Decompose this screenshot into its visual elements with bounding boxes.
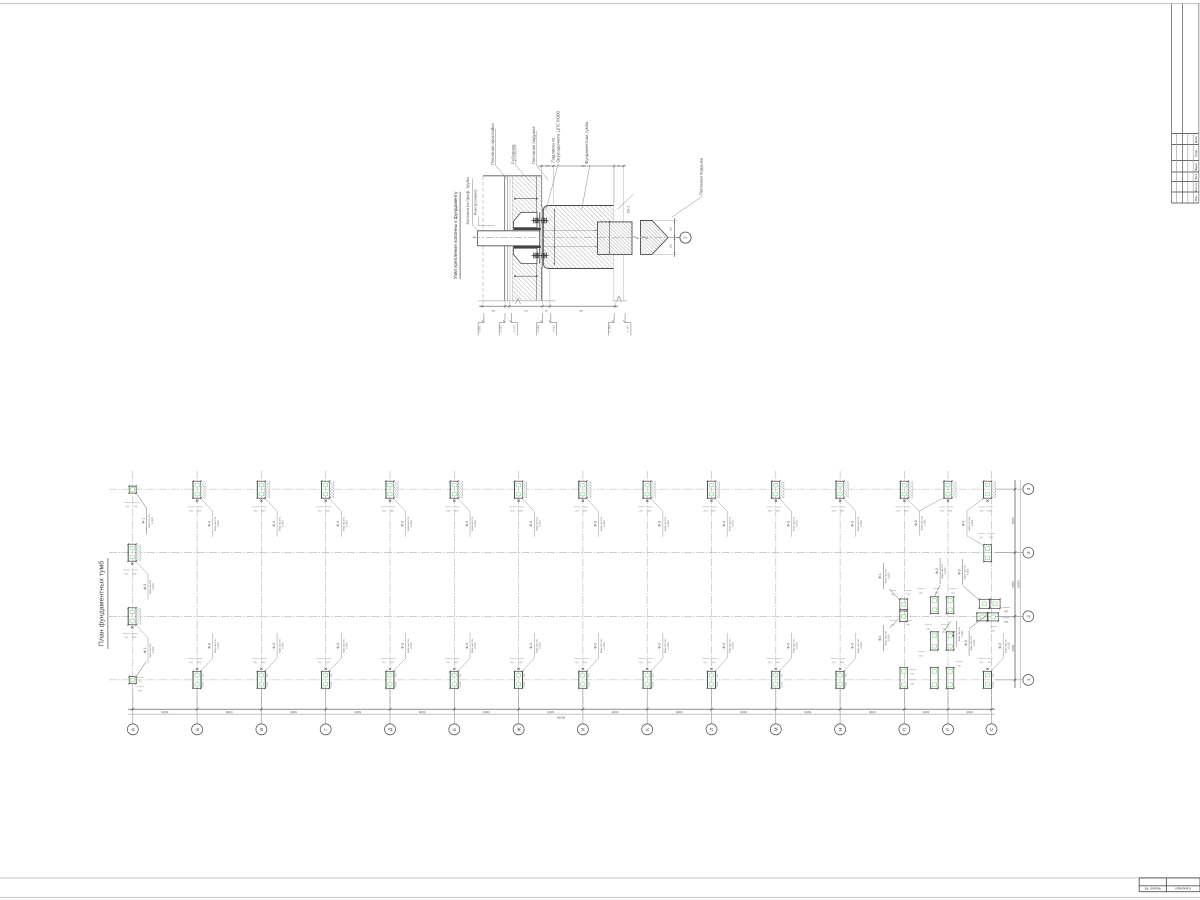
svg-text:К: К [645, 728, 650, 731]
svg-text:500: 500 [775, 509, 780, 512]
svg-text:500: 500 [987, 661, 992, 664]
svg-text:-0.620: -0.620 [152, 583, 155, 591]
svg-text:250: 250 [138, 689, 143, 692]
svg-text:-0.620: -0.620 [281, 520, 284, 528]
svg-text:-0.620: -0.620 [860, 642, 863, 650]
svg-text:№док.: №док. [1194, 162, 1198, 171]
svg-text:Ф-1: Ф-1 [878, 573, 882, 579]
svg-text:-0.620: -0.620 [961, 630, 964, 638]
svg-text:750: 750 [510, 661, 515, 664]
svg-text:безусадочного ЦПС М300: безусадочного ЦПС М300 [556, 110, 561, 162]
svg-text:-0.620: -0.620 [474, 642, 477, 650]
svg-text:750: 750 [992, 673, 995, 678]
svg-text:Ф-2: Ф-2 [529, 521, 533, 527]
svg-text:4: 4 [1026, 487, 1031, 490]
svg-text:-0.620: -0.620 [796, 520, 799, 528]
svg-text:6000: 6000 [804, 710, 811, 714]
svg-text:Рубероид: Рубероид [511, 144, 516, 164]
svg-text:6000: 6000 [354, 710, 361, 714]
svg-text:Песчаная прослойка: Песчаная прослойка [490, 123, 495, 165]
svg-text:150: 150 [670, 226, 673, 231]
svg-text:Ф-2: Ф-2 [465, 521, 469, 527]
svg-text:750: 750 [510, 509, 515, 512]
svg-text:2500: 2500 [992, 681, 995, 687]
svg-text:750: 750 [202, 673, 205, 678]
svg-text:1: 1 [1026, 678, 1031, 681]
svg-text:-0.620: -0.620 [151, 516, 154, 524]
svg-text:6000: 6000 [161, 710, 168, 714]
svg-text:Ф-2: Ф-2 [851, 521, 855, 527]
svg-text:Н: Н [838, 728, 843, 731]
svg-text:-0.620: -0.620 [552, 325, 555, 333]
svg-text:600: 600 [578, 309, 583, 312]
svg-text:Песчаная подушка: Песчаная подушка [531, 126, 536, 164]
svg-text:2500: 2500 [330, 681, 333, 687]
svg-text:750: 750 [639, 661, 644, 664]
svg-text:-0.620: -0.620 [731, 520, 734, 528]
svg-text:Ф-2: Ф-2 [208, 521, 212, 527]
svg-text:4000: 4000 [923, 710, 930, 714]
svg-text:Ф-2: Ф-2 [593, 521, 597, 527]
svg-text:750: 750 [125, 505, 130, 508]
svg-text:500: 500 [582, 661, 587, 664]
svg-text:500: 500 [839, 509, 844, 512]
svg-text:В: В [259, 728, 264, 731]
svg-text:6000: 6000 [1011, 581, 1015, 588]
svg-text:750: 750 [979, 661, 984, 664]
svg-text:2500: 2500 [459, 681, 462, 687]
svg-text:750: 750 [446, 661, 451, 664]
svg-text:2500: 2500 [202, 681, 205, 687]
svg-text:Ф-2: Ф-2 [401, 521, 405, 527]
svg-text:Ф-2: Ф-2 [722, 643, 726, 649]
svg-text:750: 750 [890, 593, 895, 596]
svg-text:-0.620: -0.620 [346, 642, 349, 650]
svg-text:-0.620: -0.620 [967, 568, 970, 576]
svg-text:6000: 6000 [740, 710, 747, 714]
svg-text:750: 750 [253, 509, 258, 512]
svg-text:-0.620: -0.620 [860, 520, 863, 528]
svg-text:500: 500 [711, 509, 716, 512]
svg-text:500: 500 [261, 509, 266, 512]
svg-text:750: 750 [910, 682, 915, 685]
svg-text:500: 500 [454, 661, 459, 664]
svg-text:Подп.: Подп. [1194, 149, 1198, 157]
svg-text:150: 150 [670, 243, 673, 248]
svg-text:750: 750 [926, 627, 931, 630]
svg-text:-0.620: -0.620 [410, 642, 413, 650]
svg-text:0.000: 0.000 [478, 325, 481, 332]
svg-text:500: 500 [1004, 610, 1009, 613]
svg-text:Ф-2: Ф-2 [722, 521, 726, 527]
svg-text:-0.170: -0.170 [513, 325, 516, 333]
svg-text:Ф-2: Ф-2 [952, 631, 956, 637]
svg-text:-0.600: -0.600 [887, 634, 890, 642]
svg-text:2500: 2500 [652, 681, 655, 687]
svg-text:-0.620: -0.620 [667, 520, 670, 528]
svg-text:6000: 6000 [1011, 644, 1015, 651]
svg-text:4000: 4000 [966, 710, 973, 714]
svg-text:Ф-2: Ф-2 [998, 643, 1002, 649]
svg-text:500: 500 [325, 509, 330, 512]
svg-text:750: 750 [317, 509, 322, 512]
svg-text:Формат А3: Формат А3 [1145, 886, 1161, 890]
svg-text:510: 510 [523, 309, 528, 312]
svg-text:750: 750 [395, 673, 398, 678]
svg-text:6000: 6000 [483, 710, 490, 714]
svg-text:500: 500 [947, 509, 952, 512]
svg-text:500: 500 [133, 505, 138, 508]
svg-text:Ф-2: Ф-2 [272, 643, 276, 649]
svg-text:500: 500 [839, 661, 844, 664]
svg-text:500: 500 [518, 661, 523, 664]
svg-text:-0.620: -0.620 [923, 519, 926, 527]
svg-text:П: П [902, 728, 907, 731]
svg-text:-0.620: -0.620 [1007, 642, 1010, 650]
svg-text:2500: 2500 [523, 681, 526, 687]
svg-text:План фундаментных тумб: План фундаментных тумб [97, 561, 105, 646]
svg-text:750: 750 [780, 673, 783, 678]
svg-text:2500: 2500 [716, 681, 719, 687]
svg-text:Копировал: Копировал [1175, 886, 1191, 890]
svg-text:750: 750 [253, 661, 258, 664]
svg-text:2: 2 [1026, 615, 1031, 618]
svg-text:160: 160 [491, 309, 496, 312]
svg-text:-0.620: -0.620 [796, 642, 799, 650]
svg-text:750: 750 [934, 591, 939, 594]
svg-text:И: И [581, 728, 586, 731]
svg-text:750: 750 [979, 509, 984, 512]
svg-text:100: 100 [545, 164, 550, 167]
svg-text:750: 750 [446, 509, 451, 512]
svg-text:Ф-2: Ф-2 [962, 520, 966, 526]
svg-text:500: 500 [582, 509, 587, 512]
svg-text:750: 750 [918, 654, 923, 657]
svg-text:-0.150: -0.150 [499, 325, 502, 333]
svg-text:Дата: Дата [1194, 136, 1198, 143]
svg-text:-0.620: -0.620 [667, 642, 670, 650]
svg-text:750: 750 [189, 661, 194, 664]
svg-text:Ф-2: Ф-2 [593, 643, 597, 649]
svg-text:750: 750 [918, 591, 923, 594]
svg-text:-0.620: -0.620 [971, 519, 974, 527]
svg-text:-0.620: -0.620 [474, 520, 477, 528]
svg-text:750: 750 [890, 623, 895, 626]
svg-text:Ф-1: Ф-1 [142, 518, 146, 524]
svg-text:Ф-2: Ф-2 [465, 643, 469, 649]
svg-text:750: 750 [703, 661, 708, 664]
svg-text:500: 500 [196, 661, 201, 664]
svg-text:750: 750 [910, 672, 915, 675]
svg-text:750: 750 [703, 509, 708, 512]
svg-text:-0.620: -0.620 [217, 642, 220, 650]
svg-text:Б: Б [195, 728, 200, 731]
svg-text:500: 500 [518, 509, 523, 512]
svg-text:Л: Л [709, 728, 714, 731]
svg-text:Изм.: Изм. [1194, 195, 1198, 202]
svg-text:Ф-2: Ф-2 [401, 643, 405, 649]
svg-text:750: 750 [330, 673, 333, 678]
svg-text:750: 750 [906, 593, 911, 596]
svg-text:Ф-2: Ф-2 [957, 569, 961, 575]
svg-text:Ф-2: Ф-2 [658, 521, 662, 527]
svg-text:750: 750 [189, 509, 194, 512]
svg-text:-0.620: -0.620 [944, 567, 947, 575]
svg-text:80000: 80000 [556, 715, 565, 719]
svg-text:2500: 2500 [845, 681, 848, 687]
svg-text:-0.620: -0.620 [603, 520, 606, 528]
svg-text:750: 750 [382, 661, 387, 664]
svg-text:Ф-1: Ф-1 [143, 647, 147, 653]
svg-text:500: 500 [196, 509, 201, 512]
svg-text:750: 750 [138, 680, 143, 683]
svg-text:750: 750 [266, 673, 269, 678]
svg-text:500: 500 [132, 572, 137, 575]
svg-text:500: 500 [454, 509, 459, 512]
svg-text:500: 500 [389, 661, 394, 664]
svg-text:500: 500 [1004, 620, 1009, 623]
svg-text:Ф-1: Ф-1 [878, 635, 882, 641]
svg-text:2500: 2500 [780, 681, 783, 687]
svg-text:750: 750 [896, 509, 901, 512]
svg-text:Рым (условно): Рым (условно) [474, 189, 478, 216]
svg-text:750: 750 [124, 572, 129, 575]
svg-text:-0.620: -0.620 [152, 646, 155, 654]
svg-text:750: 750 [317, 661, 322, 664]
svg-text:750: 750 [940, 509, 945, 512]
svg-text:6000: 6000 [226, 710, 233, 714]
svg-text:500: 500 [711, 661, 716, 664]
svg-text:500: 500 [987, 509, 992, 512]
svg-text:750: 750 [574, 509, 579, 512]
svg-text:500: 500 [989, 536, 994, 539]
svg-text:-0.580: -0.580 [537, 325, 540, 333]
svg-text:-0.600: -0.600 [887, 572, 890, 580]
svg-text:Ф-2: Ф-2 [143, 584, 147, 590]
svg-text:Ф-2: Ф-2 [786, 643, 790, 649]
svg-text:Ф-2: Ф-2 [786, 521, 790, 527]
svg-text:6000: 6000 [1011, 517, 1015, 524]
svg-text:750: 750 [716, 673, 719, 678]
svg-text:500: 500 [389, 509, 394, 512]
svg-text:750: 750 [906, 623, 911, 626]
svg-text:Ф-2: Ф-2 [935, 568, 939, 574]
svg-text:3: 3 [1026, 551, 1031, 554]
svg-text:Песчаная подушка: Песчаная подушка [699, 157, 704, 195]
svg-text:Ск-1: Ск-1 [626, 206, 630, 214]
svg-text:-0.620: -0.620 [603, 642, 606, 650]
svg-text:Е: Е [452, 728, 457, 731]
svg-text:750: 750 [587, 673, 590, 678]
svg-text:-0.620: -0.620 [539, 642, 542, 650]
svg-text:Ф-2: Ф-2 [336, 521, 340, 527]
svg-text:500: 500 [132, 636, 137, 639]
svg-text:Кол.уч: Кол.уч [1194, 182, 1198, 191]
svg-text:500: 500 [904, 509, 909, 512]
svg-text:-0.620: -0.620 [731, 642, 734, 650]
svg-text:Р: Р [946, 728, 951, 731]
svg-text:750: 750 [979, 536, 984, 539]
svg-text:-0.620: -0.620 [410, 520, 413, 528]
svg-text:Ф-2: Ф-2 [272, 521, 276, 527]
svg-text:500: 500 [647, 661, 652, 664]
svg-text:Ж: Ж [516, 727, 521, 732]
svg-text:Ф-2: Ф-2 [336, 643, 340, 649]
svg-text:Ф-2: Ф-2 [964, 640, 968, 646]
svg-text:750: 750 [832, 661, 837, 664]
svg-text:6000: 6000 [869, 710, 876, 714]
svg-text:750: 750 [767, 509, 772, 512]
svg-text:500: 500 [647, 509, 652, 512]
svg-text:2500: 2500 [587, 681, 590, 687]
svg-text:500: 500 [325, 661, 330, 664]
svg-text:Ф-2: Ф-2 [658, 643, 662, 649]
svg-text:-0.620: -0.620 [217, 520, 220, 528]
svg-text:750: 750 [382, 509, 387, 512]
svg-text:750: 750 [523, 673, 526, 678]
svg-text:-1.120: -1.120 [609, 325, 612, 333]
svg-text:-0.620: -0.620 [346, 520, 349, 528]
svg-text:750: 750 [574, 661, 579, 664]
svg-text:Ф-2: Ф-2 [529, 643, 533, 649]
svg-text:500: 500 [775, 661, 780, 664]
svg-text:750: 750 [639, 509, 644, 512]
svg-text:-0.620: -0.620 [973, 639, 976, 647]
svg-text:750: 750 [767, 661, 772, 664]
svg-text:Узел крепления колонны к фунда: Узел крепления колонны к фундаменту [453, 191, 459, 279]
svg-text:2500: 2500 [266, 681, 269, 687]
svg-text:750: 750 [652, 673, 655, 678]
svg-text:Лист: Лист [1194, 173, 1198, 180]
svg-text:6000: 6000 [547, 710, 554, 714]
svg-text:6000: 6000 [611, 710, 618, 714]
svg-text:750: 750 [124, 636, 129, 639]
svg-text:750: 750 [957, 664, 962, 667]
svg-text:Ф-2: Ф-2 [851, 643, 855, 649]
svg-text:750: 750 [845, 673, 848, 678]
svg-text:Фундаментная тумба: Фундаментная тумба [584, 121, 589, 164]
svg-text:750: 750 [942, 627, 947, 630]
svg-text:750: 750 [950, 591, 955, 594]
svg-text:М: М [774, 727, 779, 731]
svg-text:500: 500 [261, 661, 266, 664]
svg-text:2500: 2500 [395, 681, 398, 687]
svg-text:-0.620: -0.620 [539, 520, 542, 528]
svg-text:18000: 18000 [1017, 580, 1021, 589]
svg-text:6000: 6000 [290, 710, 297, 714]
svg-text:750: 750 [832, 509, 837, 512]
svg-text:Ф-2: Ф-2 [914, 520, 918, 526]
svg-text:750: 750 [459, 673, 462, 678]
svg-text:750: 750 [991, 629, 996, 632]
svg-text:-0.620: -0.620 [281, 642, 284, 650]
svg-text:-1.190: -1.190 [627, 325, 630, 333]
svg-text:6000: 6000 [676, 710, 683, 714]
svg-text:Ф-2: Ф-2 [208, 643, 212, 649]
svg-text:Колонна из проф. трубы: Колонна из проф. трубы [465, 177, 470, 224]
svg-text:6000: 6000 [418, 710, 425, 714]
